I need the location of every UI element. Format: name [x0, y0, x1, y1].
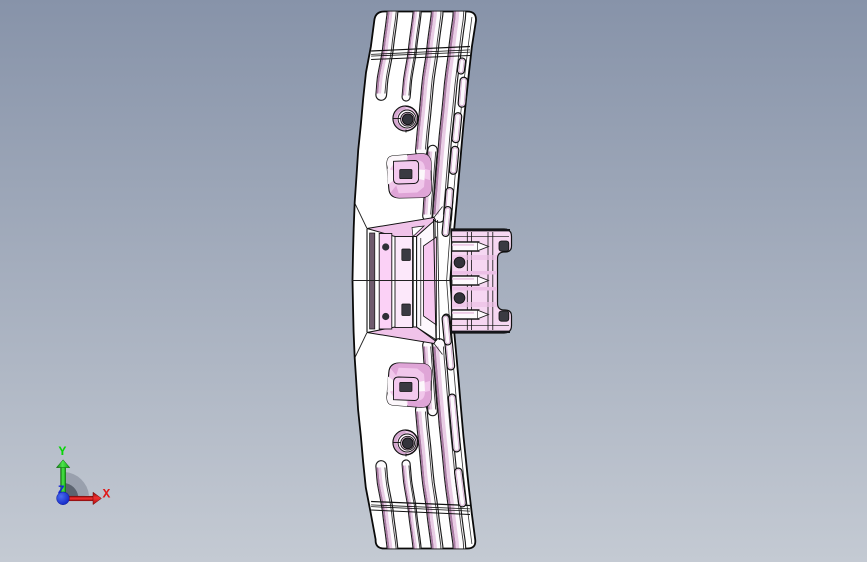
- svg-text:Y: Y: [59, 444, 67, 459]
- svg-text:X: X: [103, 487, 111, 502]
